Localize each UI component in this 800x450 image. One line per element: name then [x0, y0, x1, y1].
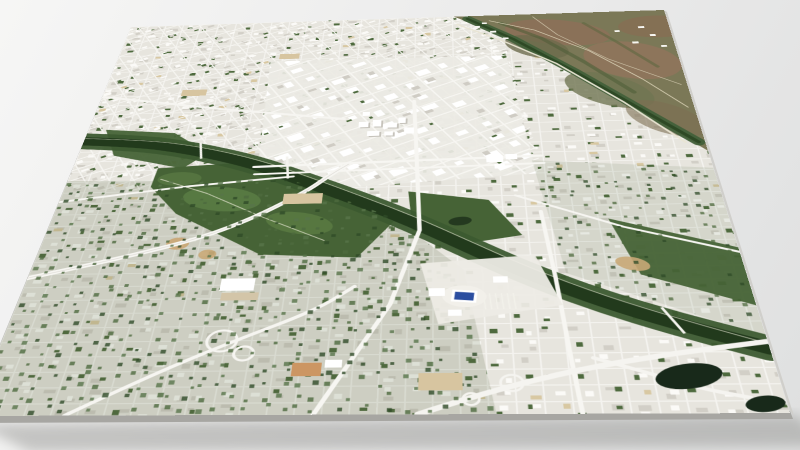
map-3d-render-scene	[0, 0, 800, 450]
overlay-layer	[0, 0, 800, 450]
